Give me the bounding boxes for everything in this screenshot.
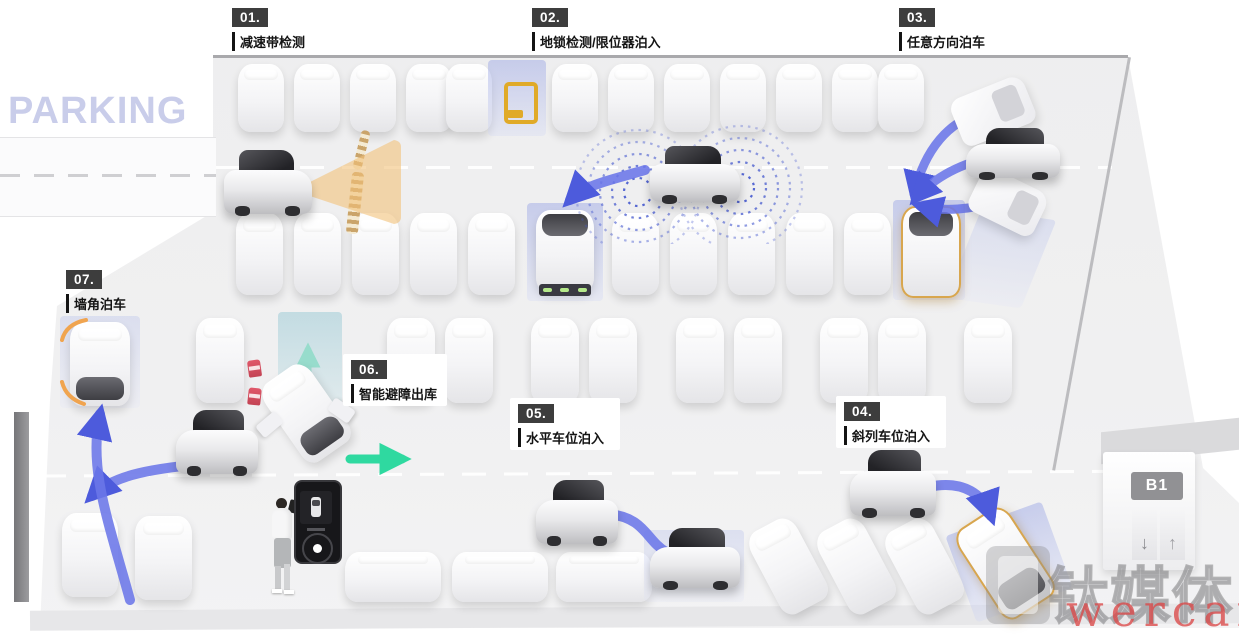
label-number: 05. <box>518 404 554 423</box>
label-caption: 斜列车位泊入 <box>844 426 930 445</box>
car-scenario5-lane <box>536 480 618 546</box>
phone-parking-view <box>300 491 332 524</box>
car-scenario1 <box>224 150 312 216</box>
label-caption: 减速带检测 <box>232 32 305 51</box>
label-scenario4: 04. 斜列车位泊入 <box>844 402 930 445</box>
label-scenario1: 01. 减速带检测 <box>232 8 305 51</box>
car-scenario3 <box>966 128 1060 180</box>
label-scenario3: 03. 任意方向泊车 <box>899 8 985 51</box>
label-scenario7: 07. 墙角泊车 <box>66 270 126 313</box>
car-scenario6 <box>258 360 353 465</box>
floor-sign: B1 <box>1131 472 1183 500</box>
label-scenario6: 06. 智能避障出库 <box>351 360 437 403</box>
label-number: 07. <box>66 270 102 289</box>
car-scenario7 <box>176 410 258 476</box>
phone-control-dial <box>302 533 333 564</box>
watermark-sub: wercar <box>1066 586 1239 637</box>
label-number: 06. <box>351 360 387 379</box>
phone-remote-icon <box>294 480 342 564</box>
label-caption: 任意方向泊车 <box>899 32 985 51</box>
car-scenario2 <box>650 146 740 204</box>
label-caption: 水平车位泊入 <box>518 428 604 447</box>
label-number: 01. <box>232 8 268 27</box>
label-caption: 智能避障出库 <box>351 384 437 403</box>
label-number: 02. <box>532 8 568 27</box>
detection-cone <box>310 140 401 224</box>
label-scenario2: 02. 地锁检测/限位器泊入 <box>532 8 661 51</box>
arrows-overlay <box>0 0 1239 637</box>
wall-proximity-arcs <box>62 320 86 404</box>
car-scenario4-lane <box>850 450 936 518</box>
label-caption: 地锁检测/限位器泊入 <box>532 32 661 51</box>
label-number: 03. <box>899 8 935 27</box>
tmtpost-logo-icon <box>986 546 1050 624</box>
label-scenario5: 05. 水平车位泊入 <box>518 404 604 447</box>
car-scenario5-parked <box>650 528 740 590</box>
label-number: 04. <box>844 402 880 421</box>
parking-garage-diagram: PARKING <box>0 0 1239 637</box>
label-caption: 墙角泊车 <box>66 294 126 313</box>
